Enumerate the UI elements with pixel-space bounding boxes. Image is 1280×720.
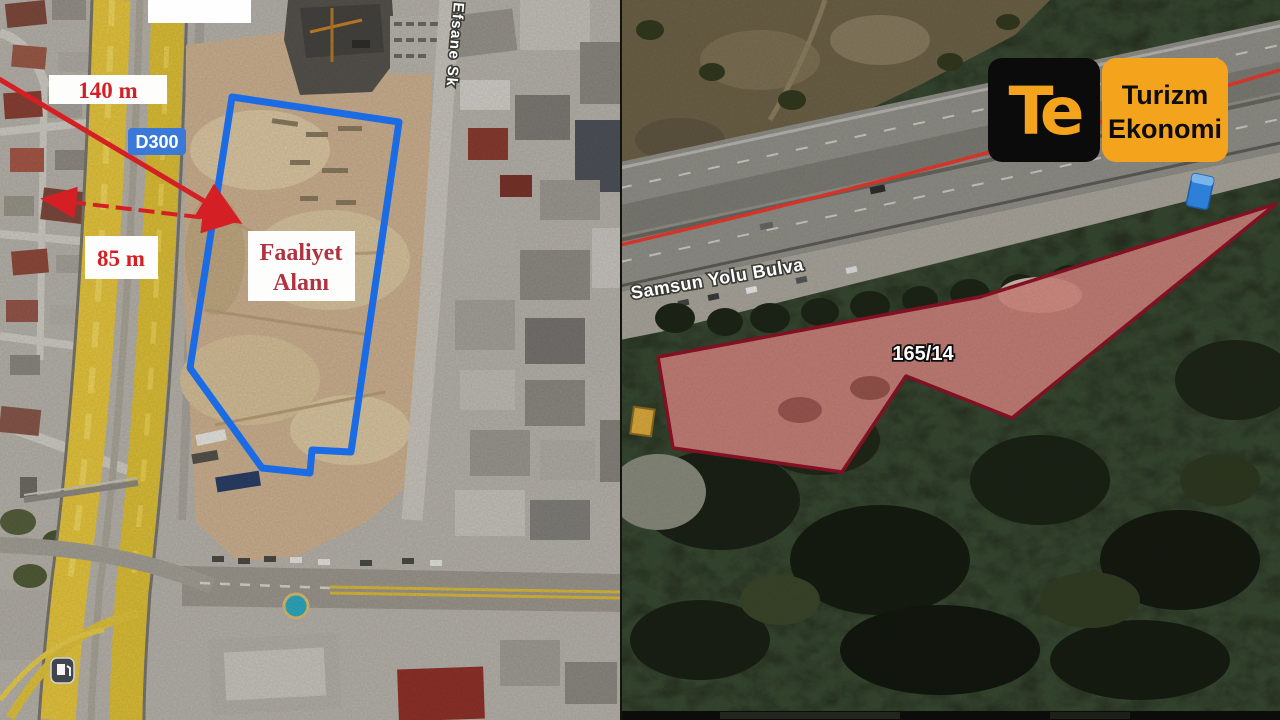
parcel-number-label: 165/14 (892, 343, 954, 365)
distance-85m-text: 85 m (97, 246, 145, 271)
site-label-box: Faaliyet Alanı (248, 231, 355, 301)
site-label-line2: Alanı (273, 270, 329, 296)
site-label-line1: Faaliyet (260, 240, 343, 266)
distance-label-140m: 140 m (49, 75, 167, 104)
logo-line2: Ekonomi (1108, 114, 1222, 144)
logo-monogram: Te (1008, 73, 1081, 150)
left-satellite-map: 140 m D300 85 m Faaliyet Alanı Efsane Sk (0, 0, 620, 720)
right-satellite-map: Samsun Yolu Bulva 165/14 Te Turizm Ekono… (620, 0, 1280, 720)
left-map-canvas: 140 m D300 85 m Faaliyet Alanı Efsane Sk (0, 0, 620, 720)
bottom-strip (622, 711, 1280, 720)
distance-label-85m: 85 m (85, 236, 158, 279)
distance-140m-text: 140 m (78, 78, 137, 103)
road-badge-d300: D300 (128, 128, 186, 155)
logo-text-box (1102, 58, 1228, 162)
road-badge-text: D300 (135, 132, 178, 152)
turizm-ekonomi-logo: Te Turizm Ekonomi (988, 58, 1228, 162)
video-frame: 140 m D300 85 m Faaliyet Alanı Efsane Sk (0, 0, 1280, 720)
cropped-label-box (148, 0, 251, 23)
right-map-canvas: Samsun Yolu Bulva 165/14 Te Turizm Ekono… (622, 0, 1280, 720)
poi-fuel-icon (51, 658, 74, 683)
logo-line1: Turizm (1122, 80, 1209, 110)
